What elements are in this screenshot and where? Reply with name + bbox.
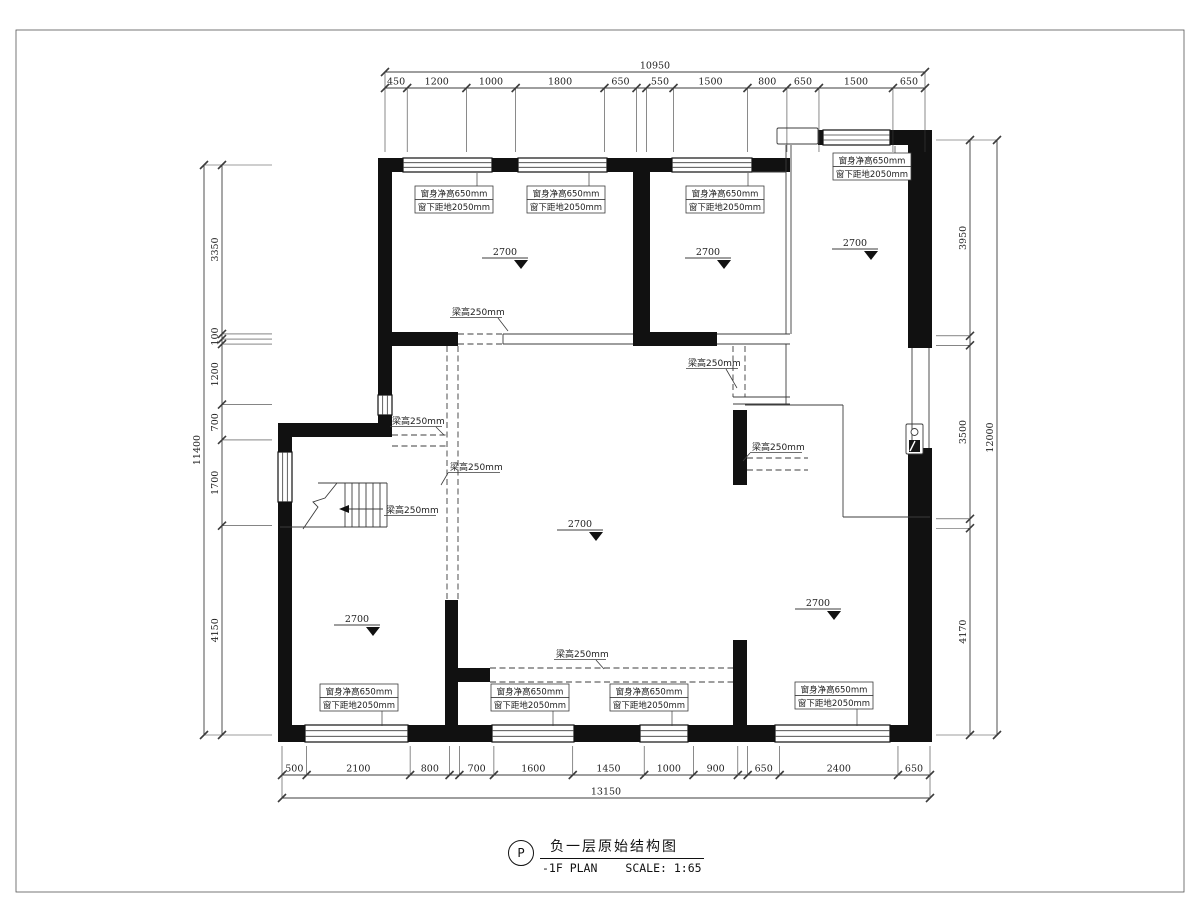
beam-label: 梁高250mm bbox=[450, 461, 503, 473]
window-symbol bbox=[775, 725, 890, 742]
window-label: 窗下距地2050mm bbox=[323, 700, 395, 711]
plan-bubble-letter: P bbox=[517, 846, 524, 860]
plan-title: 负一层原始结构图 bbox=[540, 836, 704, 859]
dim-value: 700 bbox=[468, 764, 486, 775]
wall bbox=[278, 423, 390, 437]
dim-value: 3350 bbox=[210, 237, 221, 261]
beam-label: 梁高250mm bbox=[452, 306, 505, 318]
wall bbox=[908, 130, 932, 348]
window-label: 窗身净高650mm bbox=[326, 687, 393, 698]
dim-value: 100 bbox=[210, 327, 221, 345]
wall bbox=[378, 332, 458, 346]
window-label: 窗下距地2050mm bbox=[530, 202, 602, 213]
dim-total: 12000 bbox=[985, 422, 996, 452]
window-symbol bbox=[518, 158, 607, 172]
dim-value: 4170 bbox=[958, 620, 969, 644]
wall bbox=[458, 668, 490, 682]
level-markers: 270027002700270027002700 bbox=[334, 238, 878, 636]
plan-name: -1F PLAN bbox=[542, 861, 597, 875]
beam-label: 梁高250mm bbox=[752, 441, 805, 453]
dim-value: 1000 bbox=[479, 77, 503, 88]
window-label: 窗下距地2050mm bbox=[494, 700, 566, 711]
level-value: 2700 bbox=[493, 247, 517, 258]
level-value: 2700 bbox=[806, 598, 830, 609]
window-label: 窗身净高650mm bbox=[533, 189, 600, 200]
beam-label: 梁高250mm bbox=[392, 415, 445, 427]
level-value: 2700 bbox=[843, 238, 867, 249]
window-label: 窗身净高650mm bbox=[497, 687, 564, 698]
wall bbox=[908, 448, 932, 742]
window-symbol bbox=[823, 130, 890, 145]
dimension-left: 335010012007001700415011400 bbox=[192, 161, 272, 739]
dimension-bottom: 5002100800700160014501000900650240065013… bbox=[278, 746, 934, 802]
level-value: 2700 bbox=[345, 614, 369, 625]
window-label: 窗下距地2050mm bbox=[613, 700, 685, 711]
dimension-right: 39503500417012000 bbox=[936, 136, 1001, 739]
dim-value: 1200 bbox=[425, 77, 449, 88]
window-symbol bbox=[278, 452, 292, 502]
level-triangle-icon bbox=[514, 260, 528, 269]
window-symbol bbox=[305, 725, 408, 742]
drawing-sheet: 270027002700270027002700窗身净高650mm窗下距地205… bbox=[0, 0, 1200, 910]
fixture-circle bbox=[911, 429, 918, 436]
dim-total: 11400 bbox=[192, 435, 203, 465]
dim-value: 1600 bbox=[521, 764, 545, 775]
stair bbox=[303, 483, 383, 529]
dim-value: 650 bbox=[611, 77, 629, 88]
dim-value: 650 bbox=[755, 764, 773, 775]
dim-value: 1450 bbox=[596, 764, 620, 775]
dim-value: 3500 bbox=[958, 420, 969, 444]
beam-label: 梁高250mm bbox=[688, 357, 741, 369]
dim-value: 500 bbox=[285, 764, 303, 775]
dim-total: 10950 bbox=[640, 61, 670, 72]
dim-value: 1000 bbox=[657, 764, 681, 775]
window-symbol bbox=[672, 158, 752, 172]
dim-value: 650 bbox=[900, 77, 918, 88]
dim-value: 3950 bbox=[958, 226, 969, 250]
window-label: 窗下距地2050mm bbox=[689, 202, 761, 213]
dim-value: 550 bbox=[651, 77, 669, 88]
window-label: 窗身净高650mm bbox=[839, 156, 906, 167]
window-labels: 窗身净高650mm窗下距地2050mm窗身净高650mm窗下距地2050mm窗身… bbox=[320, 146, 911, 726]
floor-plan-svg: 270027002700270027002700窗身净高650mm窗下距地205… bbox=[0, 0, 1200, 910]
dim-value: 1500 bbox=[844, 77, 868, 88]
fixture-symbol bbox=[909, 429, 920, 453]
window-label: 窗下距地2050mm bbox=[836, 169, 908, 180]
wall bbox=[733, 640, 747, 727]
dim-value: 1700 bbox=[210, 471, 221, 495]
window-label: 窗身净高650mm bbox=[692, 189, 759, 200]
window-symbol bbox=[640, 725, 688, 742]
title-block: P 负一层原始结构图 -1F PLAN SCALE: 1:65 bbox=[508, 836, 704, 875]
level-triangle-icon bbox=[589, 532, 603, 541]
stair-break-line bbox=[303, 483, 337, 529]
window-label: 窗下距地2050mm bbox=[418, 202, 490, 213]
level-triangle-icon bbox=[717, 260, 731, 269]
window-label: 窗身净高650mm bbox=[616, 687, 683, 698]
dim-value: 650 bbox=[794, 77, 812, 88]
wall bbox=[445, 600, 458, 727]
dim-value: 900 bbox=[707, 764, 725, 775]
window-symbol bbox=[378, 395, 392, 415]
stair-direction-arrow bbox=[339, 505, 349, 513]
thin-outline bbox=[777, 128, 818, 144]
level-value: 2700 bbox=[568, 519, 592, 530]
dim-value: 650 bbox=[905, 764, 923, 775]
dim-value: 800 bbox=[421, 764, 439, 775]
level-value: 2700 bbox=[696, 247, 720, 258]
wall bbox=[733, 410, 747, 485]
window-label: 窗身净高650mm bbox=[421, 189, 488, 200]
dim-value: 2400 bbox=[827, 764, 851, 775]
dim-value: 2100 bbox=[346, 764, 370, 775]
window-label: 窗身净高650mm bbox=[801, 685, 868, 696]
window-symbol bbox=[492, 725, 574, 742]
plan-bubble: P bbox=[508, 840, 534, 866]
window-label: 窗下距地2050mm bbox=[798, 698, 870, 709]
wall bbox=[633, 332, 717, 346]
dim-value: 1500 bbox=[698, 77, 722, 88]
level-triangle-icon bbox=[864, 251, 878, 260]
dim-value: 700 bbox=[210, 413, 221, 431]
wall bbox=[633, 172, 650, 334]
dim-value: 800 bbox=[758, 77, 776, 88]
plan-scale: SCALE: 1:65 bbox=[625, 861, 701, 875]
level-triangle-icon bbox=[827, 611, 841, 620]
dim-value: 450 bbox=[387, 77, 405, 88]
window-symbol bbox=[403, 158, 492, 172]
dim-value: 1200 bbox=[210, 362, 221, 386]
dim-value: 1800 bbox=[548, 77, 572, 88]
beam-label: 梁高250mm bbox=[386, 504, 439, 516]
dim-total: 13150 bbox=[591, 787, 621, 798]
level-triangle-icon bbox=[366, 627, 380, 636]
dim-value: 4150 bbox=[210, 618, 221, 642]
beam-label: 梁高250mm bbox=[556, 648, 609, 660]
